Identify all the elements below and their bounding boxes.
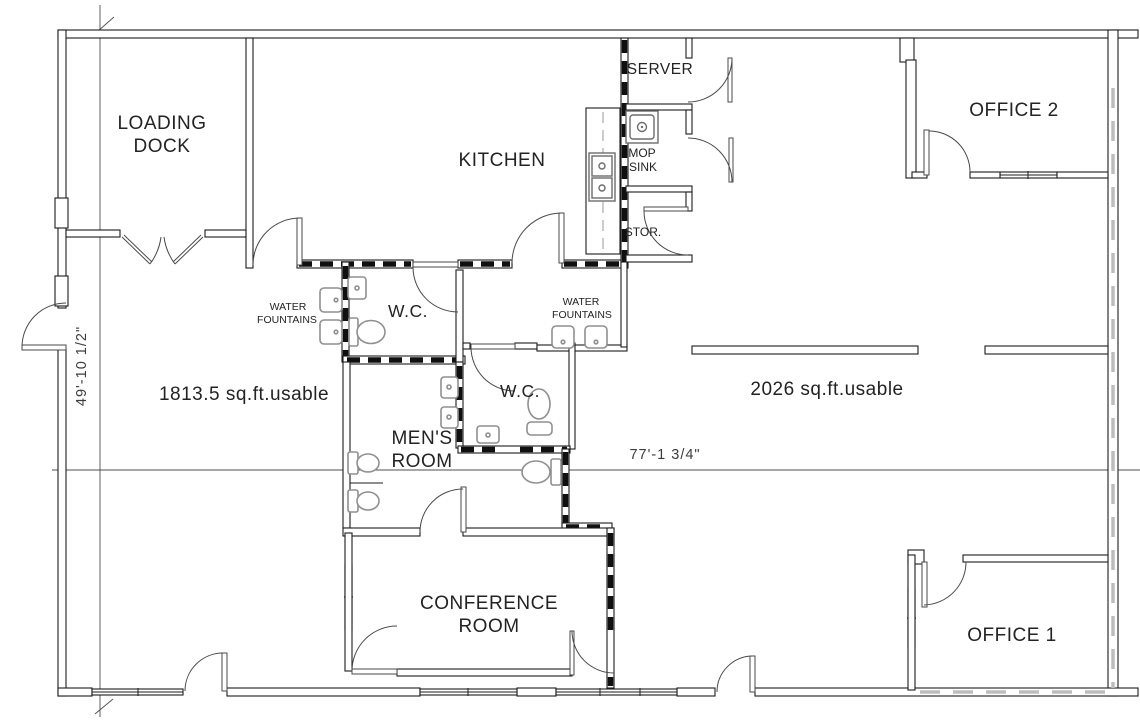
door xyxy=(253,218,302,265)
area-west-label: 1813.5 sq.ft.usable xyxy=(159,384,329,405)
door xyxy=(420,487,466,532)
water-fountains-east-label: WATER xyxy=(563,296,600,308)
double-door xyxy=(122,235,203,264)
door xyxy=(352,626,397,674)
room-office-1 xyxy=(908,550,1108,690)
double-sink-icon xyxy=(589,153,615,201)
partial-walls xyxy=(692,346,1108,354)
window xyxy=(556,688,677,696)
sink-icon xyxy=(348,277,366,299)
storage-label: STOR. xyxy=(625,225,661,239)
office-1-label: OFFICE 1 xyxy=(967,625,1057,646)
loading-dock-label: DOCK xyxy=(134,136,191,157)
window xyxy=(420,688,517,696)
exterior-door-west xyxy=(22,303,66,350)
left-wall-panel xyxy=(55,276,68,306)
outer-walls xyxy=(55,30,1138,696)
exterior-door-south-west xyxy=(185,653,227,691)
door xyxy=(922,562,966,607)
water-fountains-west xyxy=(320,288,342,344)
mop-sink-icon xyxy=(626,111,658,143)
conference-room-label: ROOM xyxy=(458,616,519,637)
water-fountains-west-label: FOUNTAINS xyxy=(257,314,317,326)
loading-dock-label: LOADING xyxy=(117,113,206,134)
water-fountains-west-label: WATER xyxy=(270,301,307,313)
kitchen-label: KITCHEN xyxy=(459,150,546,171)
door xyxy=(688,58,732,102)
mop-sink-label: MOP xyxy=(628,146,655,160)
sink-icon xyxy=(477,426,499,443)
door xyxy=(512,213,564,263)
door xyxy=(688,138,733,182)
mens-room-label: ROOM xyxy=(391,451,452,472)
server-label: SERVER xyxy=(627,61,693,78)
window xyxy=(92,688,183,696)
water-fountains-east-label: FOUNTAINS xyxy=(552,309,612,321)
wc-north-label: W.C. xyxy=(388,301,428,321)
mop-sink-label: SINK xyxy=(629,160,657,174)
toilet-icon xyxy=(348,490,379,512)
exterior-door-south-east xyxy=(717,656,755,692)
conference-room-label: CONFERENCE xyxy=(420,593,558,614)
window xyxy=(1000,171,1057,179)
toilet-icon xyxy=(349,318,385,346)
room-kitchen xyxy=(253,38,628,268)
area-east-label: 2026 sq.ft.usable xyxy=(750,379,903,400)
floor-plan-canvas: LOADING DOCK KITCHEN SERVER MOP SINK STO… xyxy=(0,0,1140,722)
horizontal-dimension-label: 77'-1 3/4" xyxy=(629,447,700,463)
door xyxy=(924,130,970,175)
vertical-dimension-label: 49'-10 1/2" xyxy=(74,326,90,406)
sink-icon xyxy=(441,407,458,428)
toilet-icon xyxy=(522,459,561,485)
room-wc-south xyxy=(456,262,627,531)
left-wall-panel xyxy=(55,198,68,228)
floor-plan: LOADING DOCK KITCHEN SERVER MOP SINK STO… xyxy=(0,0,1140,722)
kitchen-counter xyxy=(586,108,620,254)
toilet-icon xyxy=(348,452,379,474)
wc-south-label: W.C. xyxy=(500,381,540,401)
office-2-label: OFFICE 2 xyxy=(969,100,1059,121)
mens-room-label: MEN'S xyxy=(391,428,452,449)
sink-icon xyxy=(441,377,458,398)
